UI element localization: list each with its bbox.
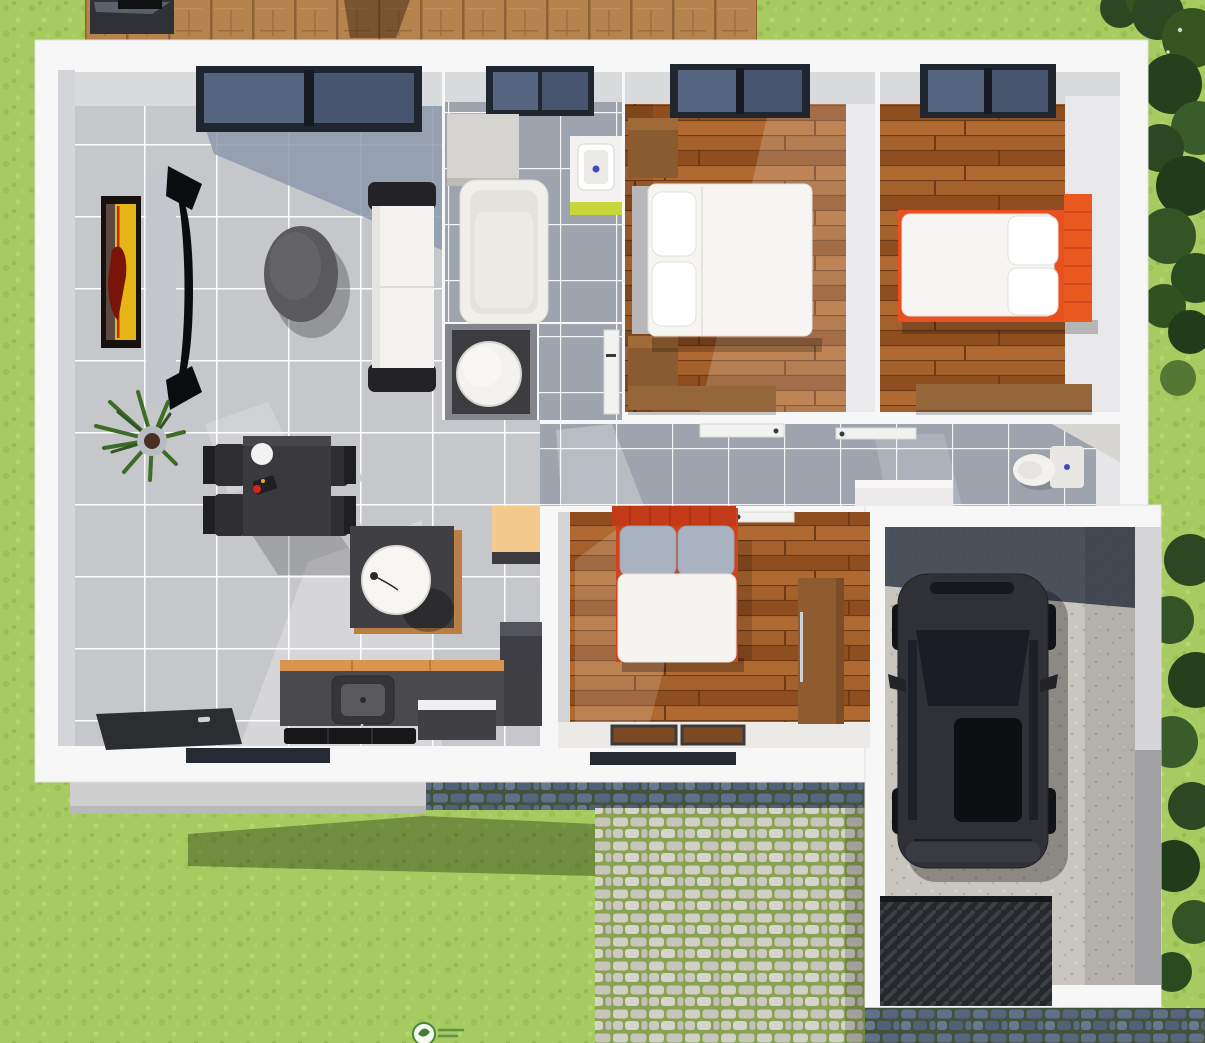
window-mullion	[984, 68, 992, 114]
dishwasher-top	[418, 700, 496, 710]
garage-floor-shade	[1085, 527, 1135, 987]
white-sofa	[368, 182, 436, 392]
orange-headboard	[1064, 194, 1092, 322]
basin-lime-panel	[570, 202, 622, 215]
sofa-armrest	[368, 182, 436, 210]
window-glass	[678, 70, 736, 112]
sink-drain	[360, 697, 366, 703]
pillow	[652, 262, 696, 326]
basin-drain	[593, 166, 600, 173]
door-handle	[840, 432, 845, 437]
nightstand-top	[628, 118, 678, 130]
porch-step-edge	[70, 806, 426, 814]
corner-cabinet	[447, 114, 519, 186]
left-wall-face	[58, 70, 75, 746]
garage-wall-shadow	[845, 808, 865, 1043]
closet-door	[604, 330, 619, 414]
double-bed-white	[632, 184, 822, 352]
flush-button	[1064, 464, 1070, 470]
desk	[628, 386, 776, 410]
bathtub	[460, 180, 548, 324]
sofa-edge-shade	[372, 206, 380, 368]
wood-deck	[85, 0, 757, 42]
patio-furniture	[90, 0, 174, 34]
peach-cabinet-shade	[492, 552, 540, 564]
side-table-lamp	[350, 526, 462, 634]
peach-cabinet	[492, 506, 540, 560]
double-bed-orange	[898, 194, 1098, 334]
sofa-cushion-split	[372, 286, 434, 288]
gray-pillow	[620, 526, 676, 576]
washbasin	[570, 136, 622, 215]
desk-shadow	[628, 410, 776, 415]
window-glass	[744, 70, 802, 112]
window-mullion	[304, 70, 314, 126]
dining-chair-back	[203, 496, 216, 534]
closet-door-handle	[606, 354, 616, 357]
front-door	[96, 708, 242, 750]
window-glass	[542, 72, 588, 110]
bedroom2-window	[920, 64, 1056, 118]
pillow	[1008, 216, 1058, 265]
car-side-window	[908, 640, 917, 820]
hallway-cabinet-top	[855, 480, 953, 488]
floor-plan-render	[0, 0, 1205, 1043]
rug	[682, 726, 744, 744]
bedroom1-window	[670, 64, 810, 118]
bedroom-1	[625, 64, 875, 415]
tv-panel	[146, 170, 176, 406]
car-rear-window	[930, 582, 1014, 594]
kitchen-counter-end	[504, 668, 542, 726]
gray-headboard	[632, 186, 650, 334]
wardrobe-side	[836, 578, 844, 724]
counter-top-edge	[280, 660, 504, 671]
pillow	[1008, 268, 1058, 315]
sunroof	[954, 718, 1022, 822]
duvet	[618, 574, 736, 662]
fridge-top	[500, 622, 542, 636]
cobblestone-driveway	[595, 808, 865, 1043]
car-side-window	[1029, 640, 1038, 820]
desk	[916, 384, 1092, 412]
dining-chair	[215, 444, 245, 486]
window-glass	[493, 72, 538, 110]
wall-art	[101, 196, 141, 348]
patio-bench-back	[118, 0, 162, 9]
gray-pillow	[678, 526, 734, 576]
double-bed-red	[612, 506, 752, 672]
cooktop	[284, 728, 416, 744]
bathroom-window	[486, 66, 594, 116]
ramp-edge	[880, 896, 1052, 902]
plant-soil	[144, 433, 160, 449]
door-handle	[774, 429, 779, 434]
cobblestone-below-garage	[865, 1008, 1205, 1043]
rug	[612, 726, 676, 744]
bedroom3-left-wall	[558, 512, 570, 722]
dining-chair-back	[344, 446, 356, 484]
centerpiece-fruit	[253, 485, 261, 493]
window-glass	[992, 70, 1048, 112]
car-windshield	[916, 630, 1030, 706]
bathtub-basin	[475, 212, 533, 308]
bedroom-3	[558, 506, 870, 765]
desk-shadow	[916, 410, 1092, 415]
coffee-table-highlight	[269, 232, 321, 300]
centerpiece-accent	[261, 479, 265, 483]
open-door	[732, 512, 794, 522]
ribbed-ramp	[880, 896, 1052, 1006]
dining-chair	[215, 494, 245, 536]
wardrobe-handle	[800, 612, 803, 682]
hallway	[540, 424, 998, 506]
sofa-armrest	[368, 364, 436, 392]
open-door	[836, 428, 916, 439]
bed-shadow	[652, 338, 822, 352]
window-mullion	[736, 68, 744, 114]
bedroom1-bright-wall	[846, 104, 875, 412]
bottom-wall-window	[590, 752, 736, 765]
open-door	[700, 424, 784, 437]
window-glass	[928, 70, 984, 112]
garage-right-wall-lower	[1135, 750, 1161, 987]
wc	[998, 424, 1120, 506]
bathroom	[445, 66, 622, 324]
window-glass	[314, 73, 414, 123]
utility-closet	[445, 324, 622, 420]
black-car	[888, 574, 1068, 882]
car-hood	[906, 842, 1040, 862]
dining-chair-back	[203, 446, 216, 484]
dinner-plate	[251, 443, 273, 465]
wardrobe	[798, 578, 844, 724]
window-glass	[204, 73, 304, 123]
bed-shadow-side	[738, 540, 752, 660]
picture-window	[196, 66, 422, 132]
front-door-handle	[198, 717, 210, 723]
dining-table-edge	[243, 436, 331, 446]
pillow	[652, 192, 696, 256]
bed-shadow	[902, 320, 1098, 334]
bottom-wall-window	[186, 748, 330, 763]
water-heater-highlight	[462, 347, 502, 387]
garage	[865, 527, 1161, 1007]
bedroom-2	[880, 64, 1120, 415]
toilet-seat	[1018, 461, 1042, 479]
